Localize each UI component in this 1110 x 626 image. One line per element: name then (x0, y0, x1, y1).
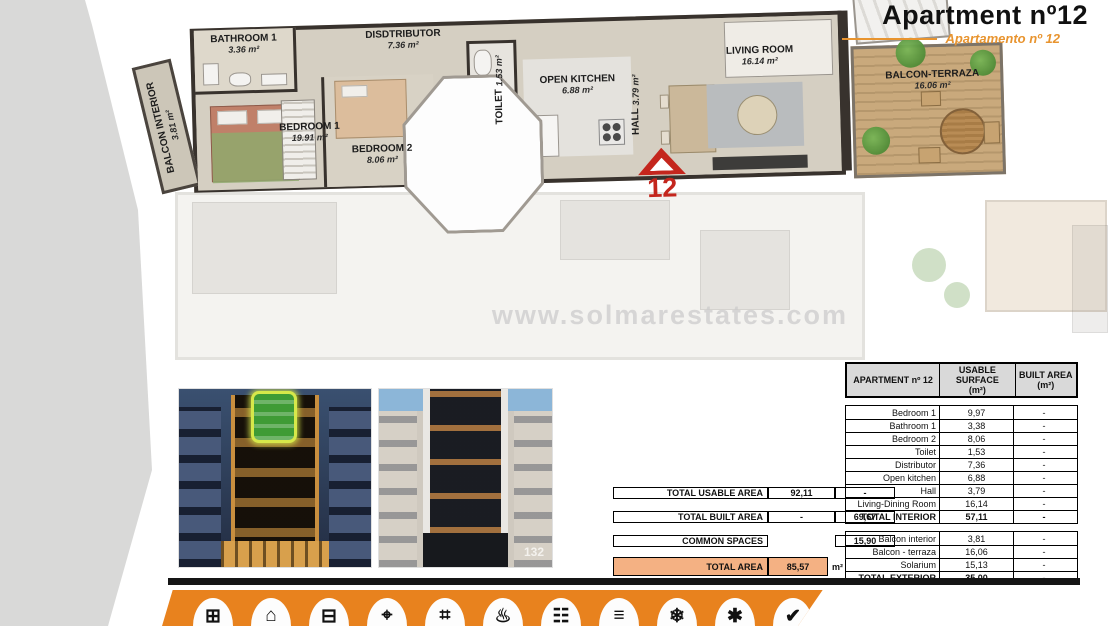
summary-total-row: TOTAL AREA 85,57 m² (613, 557, 843, 576)
building-entrance (423, 533, 508, 567)
apartment-marker: 12 (629, 147, 694, 202)
room-label: TOILET (494, 89, 506, 125)
exterior-rows: Balcon interior3,81- Balcon - terraza16,… (845, 531, 1078, 585)
bed-icon: ⊟ (309, 598, 349, 626)
chair (660, 95, 669, 109)
total-interior-row: TOTAL INTERIOR57,11- (846, 510, 1077, 523)
neighbor-building (179, 407, 221, 567)
cooktop (598, 119, 625, 146)
col-apartment: APARTMENT nº 12 (847, 364, 939, 396)
table-row: Balcon interior3,81- (846, 532, 1077, 545)
photo-building-night (178, 388, 372, 568)
room-balcon-terraza: BALCON-TERRAZA 16.06 m² (850, 42, 1006, 178)
col-usable-surface: USABLE SURFACE (m²) (939, 364, 1014, 396)
area-table: APARTMENT nº 12 USABLE SURFACE (m²) BUIL… (845, 362, 1078, 585)
col-built-area: BUILT AREA (m²) (1015, 364, 1076, 396)
room-bathroom-1: BATHROOM 1 3.36 m² (194, 28, 298, 95)
table-row: Hall3,79- (846, 484, 1077, 497)
summary-label: COMMON SPACES (613, 535, 768, 547)
heating-icon: ♨ (483, 598, 523, 626)
table-row: Bedroom 19,97- (846, 406, 1077, 419)
wardrobe-icon: ☷ (541, 598, 581, 626)
total-area-value: 85,57 (768, 557, 828, 576)
toilet-fixture (473, 49, 492, 75)
room-label: BEDROOM 2 (352, 143, 413, 156)
page-subtitle: Apartamento nº 12 (945, 31, 1060, 46)
total-area-label: TOTAL AREA (613, 557, 768, 576)
room-label: HALL (630, 108, 642, 135)
pillow (341, 85, 367, 98)
marker-number: 12 (630, 174, 695, 202)
bathtub (203, 63, 220, 85)
neighbor-building (514, 411, 552, 567)
table-row: Living-Dining Room16,14- (846, 497, 1077, 510)
checklist-icon: ❄ (657, 598, 697, 626)
chair (661, 130, 670, 144)
summary-usable (768, 535, 835, 547)
terrace-chair (921, 91, 941, 107)
divider-rule (168, 578, 1080, 585)
table-row: Bedroom 28,06- (846, 432, 1077, 445)
table-row: Solarium15,13- (846, 558, 1077, 571)
area-table-header: APARTMENT nº 12 USABLE SURFACE (m²) BUIL… (845, 362, 1078, 398)
interior-rows: Bedroom 19,97- Bathroom 13,38- Bedroom 2… (845, 405, 1078, 524)
table-row: Distributor7,36- (846, 458, 1077, 471)
table-row: Open kitchen6,88- (846, 471, 1077, 484)
room-area: 19.91 m² (292, 132, 328, 143)
room-area: 3.36 m² (228, 44, 259, 55)
watermark: www.solmarestates.com (400, 300, 940, 331)
room-area: 1.53 m² (494, 56, 505, 87)
amenities-banner: ⊞ ⌂ ⊟ ⌖ ⌗ ♨ ☷ ≡ ❄ ✱ ✔ (158, 590, 826, 626)
neighbor-building (379, 411, 417, 567)
ghost-stairs (1072, 225, 1108, 333)
building-lobby (221, 541, 329, 567)
ghost-plant (944, 282, 970, 308)
room-distributor: DISDTRIBUTOR 7.36 m² (338, 27, 469, 53)
room-area: 16.06 m² (914, 80, 950, 91)
ghost-room (560, 200, 670, 260)
ladder-icon: ⌗ (425, 598, 465, 626)
subtitle-divider (842, 38, 937, 40)
air-conditioning-icon: ✱ (715, 598, 755, 626)
room-hall: HALL 3.79 m² (629, 64, 643, 144)
total-area-unit: m² (828, 557, 843, 576)
terrace-chair (918, 147, 940, 164)
ghost-room (700, 230, 790, 310)
summary-usable: 92,11 (768, 487, 835, 499)
terrace-chair (984, 121, 1001, 143)
room-area: 7.36 m² (388, 39, 419, 50)
table-row: Toilet1,53- (846, 445, 1077, 458)
pillow (217, 110, 247, 125)
ghost-room (192, 202, 337, 294)
dimensions-icon: ⊞ (193, 598, 233, 626)
room-area: 6.88 m² (562, 85, 593, 96)
warranty-icon: ✔ (773, 598, 813, 626)
ghost-plant (912, 248, 946, 282)
neighbor-building (329, 407, 371, 567)
lamp-icon: ⌖ (367, 598, 407, 626)
table-row: Balcon - terraza16,06- (846, 545, 1077, 558)
tv-unit (712, 155, 807, 171)
summary-usable: - (768, 511, 835, 523)
toilet-fixture (261, 73, 287, 86)
apartment-highlight (251, 391, 297, 443)
photo-building-day: 132 (378, 388, 553, 568)
room-label: BEDROOM 1 (279, 121, 340, 134)
room-area: 3.79 m² (630, 74, 641, 105)
family-icon: ≡ (599, 598, 639, 626)
marker-triangle-icon (637, 147, 686, 175)
summary-label: TOTAL USABLE AREA (613, 487, 768, 499)
summary-label: TOTAL BUILT AREA (613, 511, 768, 523)
home-icon: ⌂ (251, 598, 291, 626)
subtitle-row: Apartamento nº 12 (842, 31, 1088, 46)
room-area: 8.06 m² (367, 154, 398, 165)
room-area: 16.14 m² (742, 55, 778, 66)
page-title: Apartment nº12 (842, 0, 1088, 30)
header: Apartment nº12 Apartamento nº 12 (842, 0, 1088, 46)
sink (229, 72, 251, 87)
building-number: 132 (524, 545, 544, 559)
table-row: Bathroom 13,38- (846, 419, 1077, 432)
